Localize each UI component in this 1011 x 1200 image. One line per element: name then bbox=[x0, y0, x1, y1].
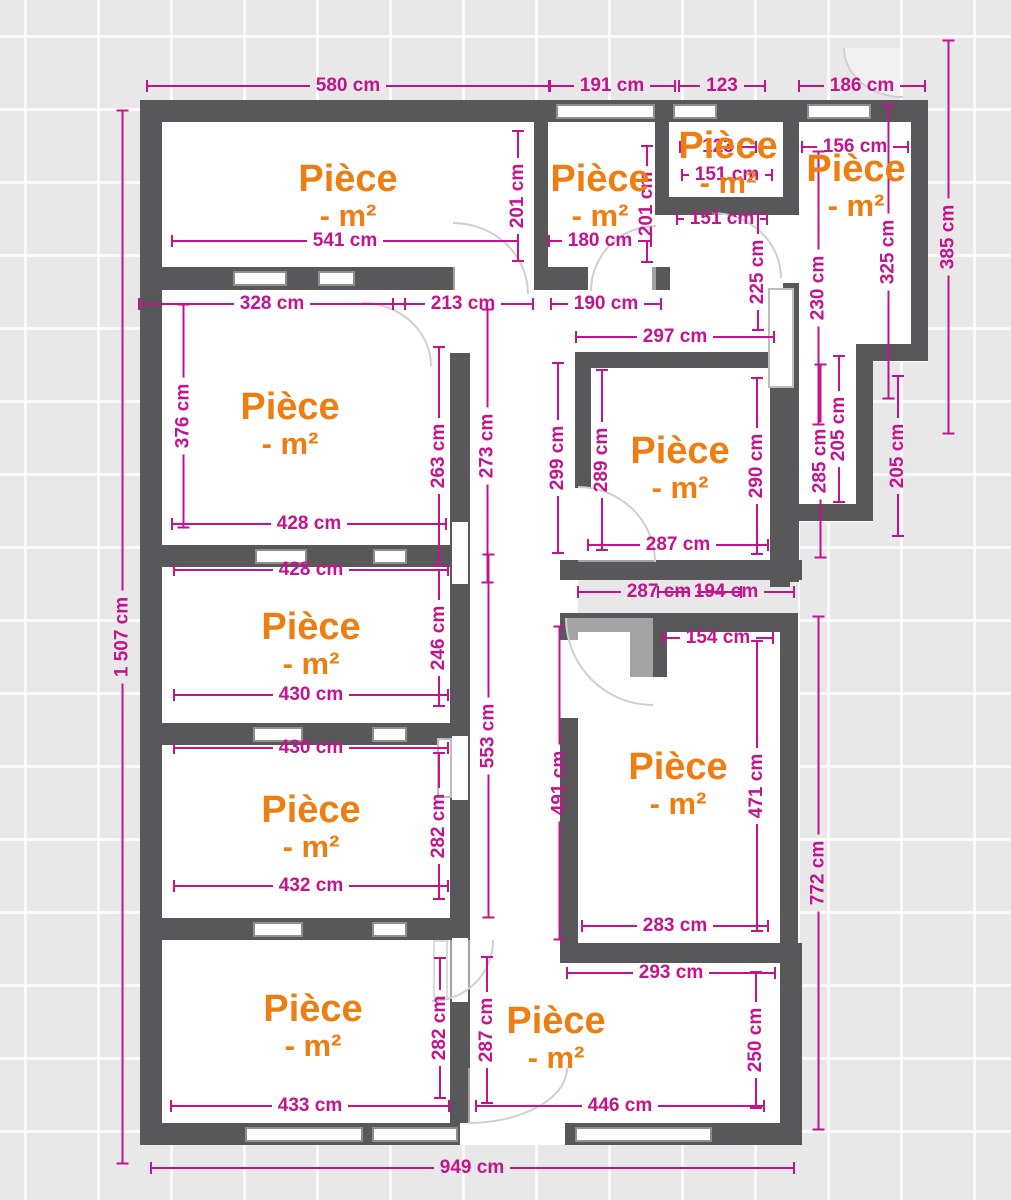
dimension-label: 194 cm bbox=[657, 581, 795, 603]
dimension-label: 213 cm bbox=[392, 293, 534, 315]
dimension-label: 297 cm bbox=[575, 326, 775, 348]
door-opening bbox=[783, 215, 799, 283]
dimension-label: 287 cm bbox=[476, 956, 498, 1104]
room-label[interactable]: Pièce- m² bbox=[630, 432, 729, 504]
window bbox=[233, 271, 287, 286]
dimension-label: 250 cm bbox=[745, 971, 767, 1109]
dimension-label: 433 cm bbox=[170, 1095, 450, 1117]
dimension-label: 290 cm bbox=[746, 377, 768, 555]
door-opening bbox=[452, 736, 468, 800]
window bbox=[575, 1127, 712, 1142]
dimension-label: 432 cm bbox=[173, 875, 449, 897]
window bbox=[807, 104, 871, 119]
dimension-label: 289 cm bbox=[591, 369, 613, 551]
dimension-label: 772 cm bbox=[807, 616, 829, 1131]
dimension-label: 282 cm bbox=[429, 957, 451, 1099]
wall bbox=[911, 100, 928, 361]
window bbox=[556, 104, 655, 119]
door-opening bbox=[452, 522, 468, 584]
room-label[interactable]: Pièce- m² bbox=[263, 990, 362, 1062]
dimension-label: 205 cm bbox=[887, 375, 909, 537]
dimension-label: 553 cm bbox=[477, 554, 499, 919]
room-label[interactable]: Pièce- m² bbox=[806, 150, 905, 222]
wall bbox=[575, 352, 787, 368]
dimension-label: 491 cm bbox=[548, 626, 570, 941]
window bbox=[253, 922, 303, 937]
wall bbox=[791, 504, 873, 521]
wall bbox=[780, 943, 802, 1145]
window bbox=[673, 104, 717, 119]
floorplan-canvas: 580 cm191 cm123186 cm541 cm180 cm123151 … bbox=[0, 0, 1011, 1200]
room-label[interactable]: Pièce- m² bbox=[678, 127, 777, 199]
dimension-label: 299 cm bbox=[547, 362, 569, 554]
room-label[interactable]: Pièce- m² bbox=[628, 748, 727, 820]
dimension-label: 201 cm bbox=[507, 130, 529, 262]
dimension-label: 446 cm bbox=[475, 1095, 765, 1117]
wall bbox=[140, 100, 162, 1145]
window bbox=[372, 922, 407, 937]
dimension-label: 580 cm bbox=[146, 75, 551, 97]
dimension-label: 246 cm bbox=[428, 569, 450, 707]
wall bbox=[560, 560, 802, 580]
dimension-label: 287 cm bbox=[587, 534, 769, 556]
dimension-label: 541 cm bbox=[171, 230, 519, 252]
room-label[interactable]: Pièce- m² bbox=[550, 160, 649, 232]
dimension-label: 282 cm bbox=[428, 752, 450, 900]
wall bbox=[162, 918, 470, 940]
dimension-label: 191 cm bbox=[548, 75, 676, 97]
window bbox=[318, 271, 355, 286]
room-label[interactable]: Pièce- m² bbox=[261, 608, 360, 680]
room-label[interactable]: Pièce- m² bbox=[240, 388, 339, 460]
wall bbox=[856, 344, 873, 521]
dimension-label: 1 507 cm bbox=[111, 110, 133, 1165]
dimension-label: 385 cm bbox=[937, 40, 959, 435]
dimension-label: 430 cm bbox=[173, 684, 449, 706]
dimension-label: 263 cm bbox=[428, 346, 450, 566]
dimension-label: 430 cm bbox=[173, 737, 449, 759]
room-label[interactable]: Pièce- m² bbox=[298, 160, 397, 232]
dimension-label: 283 cm bbox=[581, 915, 769, 937]
dimension-label: 273 cm bbox=[476, 309, 498, 584]
room-label[interactable]: Pièce- m² bbox=[506, 1002, 605, 1074]
dimension-label: 428 cm bbox=[171, 513, 447, 535]
dimension-label: 225 cm bbox=[747, 213, 769, 331]
door-opening bbox=[460, 1123, 565, 1145]
room-label[interactable]: Pièce- m² bbox=[261, 791, 360, 863]
dimension-label: 428 cm bbox=[173, 559, 449, 581]
wall bbox=[534, 122, 548, 290]
dimension-label: 190 cm bbox=[550, 293, 662, 315]
wall bbox=[560, 943, 798, 963]
window bbox=[245, 1127, 363, 1142]
dimension-label: 471 cm bbox=[746, 640, 768, 932]
dimension-label: 949 cm bbox=[150, 1157, 795, 1179]
wall bbox=[780, 613, 798, 963]
dimension-label: 376 cm bbox=[172, 304, 194, 529]
dimension-label: 186 cm bbox=[798, 75, 926, 97]
dimension-label: 205 cm bbox=[828, 355, 850, 503]
window bbox=[372, 1127, 458, 1142]
dimension-label: 123 bbox=[678, 75, 766, 97]
